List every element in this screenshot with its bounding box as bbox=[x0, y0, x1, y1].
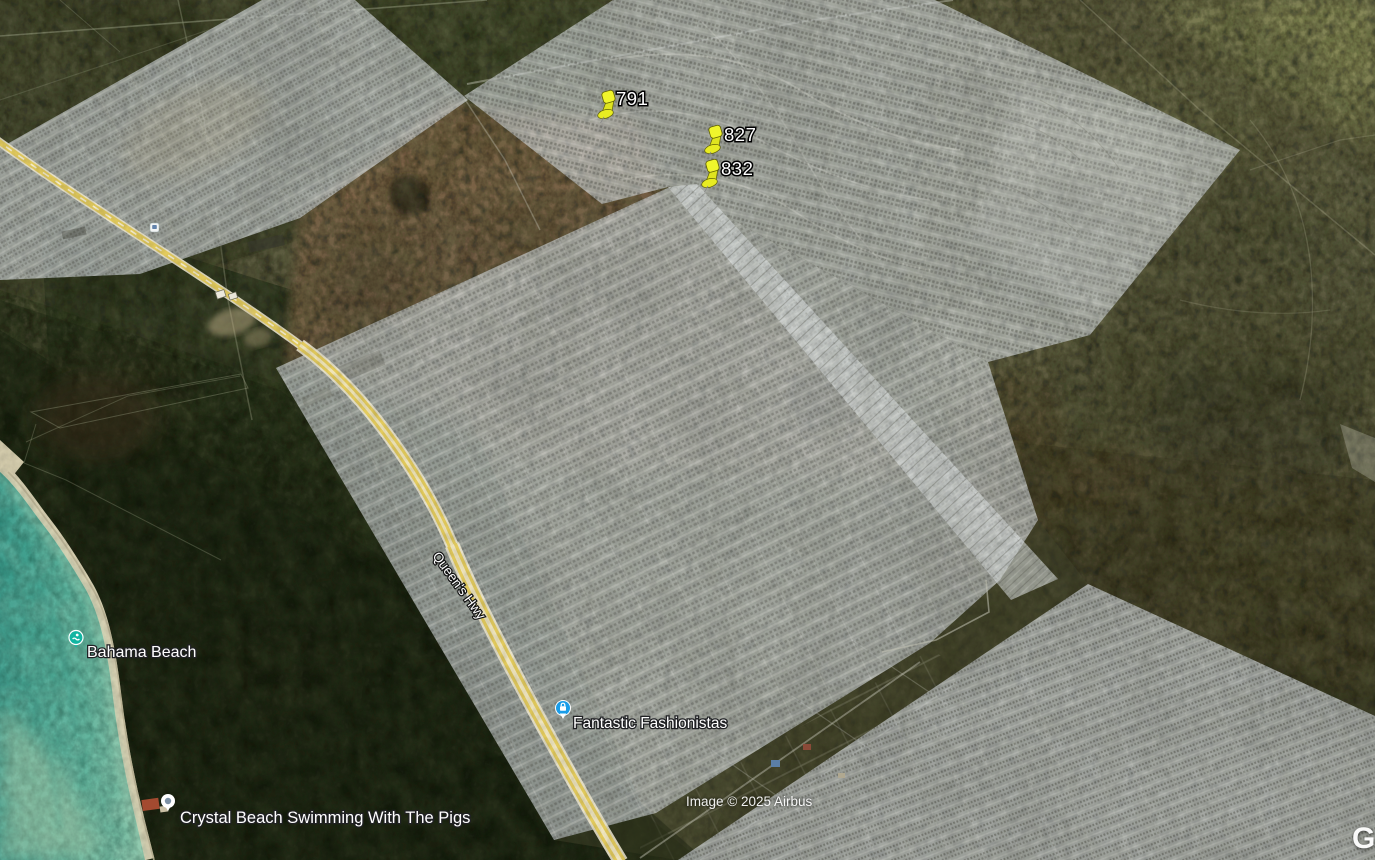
svg-text:832: 832 bbox=[721, 158, 753, 179]
svg-text:Fantastic Fashionistas: Fantastic Fashionistas bbox=[573, 715, 727, 732]
svg-text:791: 791 bbox=[616, 88, 648, 109]
svg-text:Bahama Beach: Bahama Beach bbox=[87, 644, 196, 661]
svg-text:827: 827 bbox=[724, 124, 756, 145]
svg-text:Image © 2025 Airbus: Image © 2025 Airbus bbox=[686, 794, 813, 809]
svg-text:Go: Go bbox=[1352, 822, 1375, 855]
svg-text:Crystal Beach Swimming With Th: Crystal Beach Swimming With The Pigs bbox=[180, 809, 470, 827]
